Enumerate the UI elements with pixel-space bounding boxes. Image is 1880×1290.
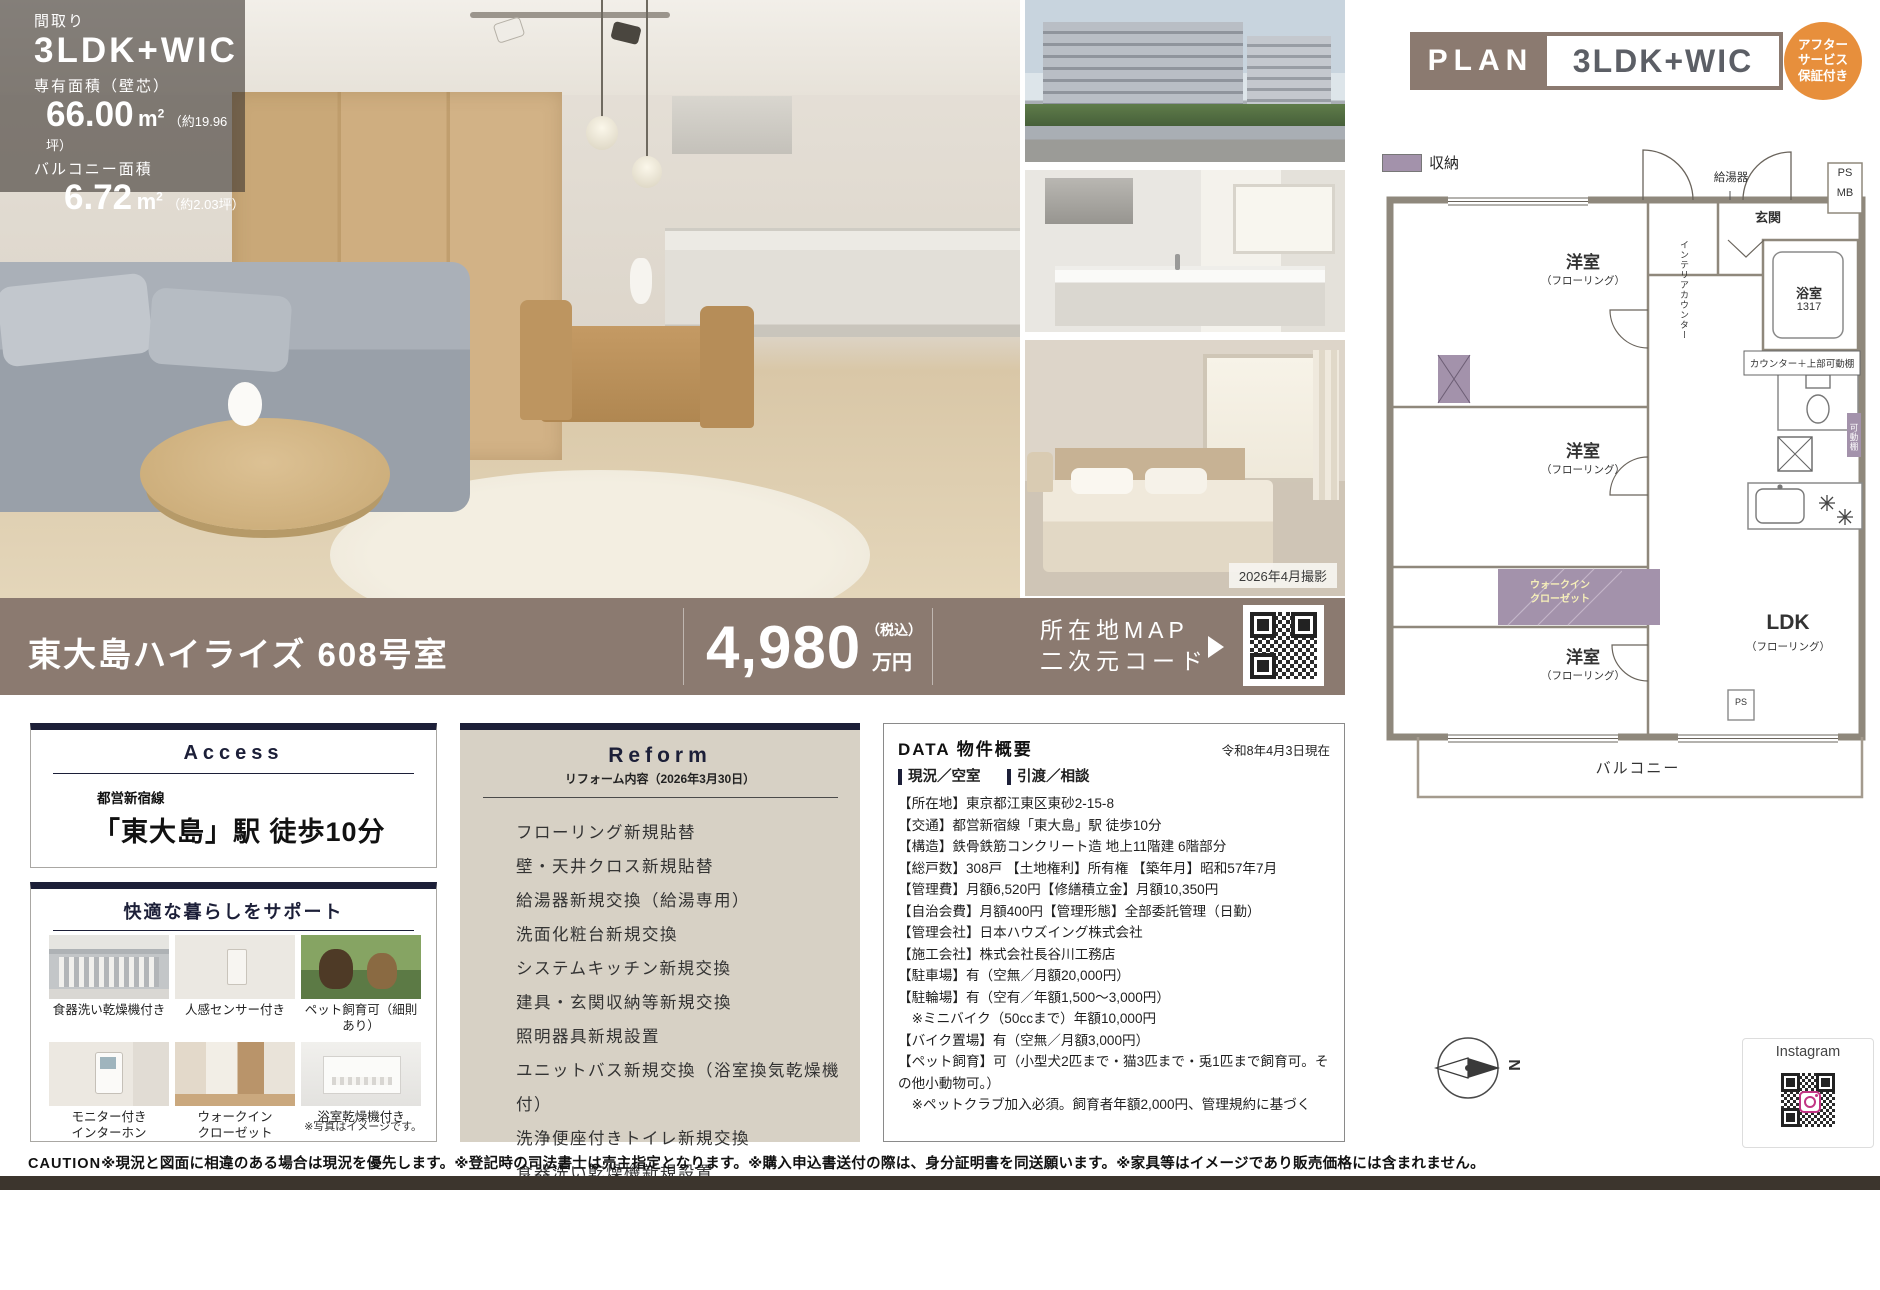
divider	[683, 608, 684, 685]
support-item: ウォークイン クローゼット	[175, 1042, 295, 1141]
floor-plan: 給湯器 玄関 PS MB 洋室 （フローリング） 浴室 1317 インテリアカウ…	[1378, 145, 1872, 825]
reform-item: 照明器具新規設置	[516, 1020, 860, 1054]
photo-kitchen	[1025, 170, 1345, 332]
badge-line: アフター	[1798, 38, 1848, 54]
label-interior-counter: インテリアカウンター	[1678, 227, 1691, 352]
kitchen-faucet	[1777, 484, 1782, 489]
label-genkan: 玄関	[1738, 207, 1798, 226]
data-box: DATA 物件概要 令和8年4月3日現在 現況／空室 引渡／相談 【所在地】東京…	[883, 723, 1345, 1142]
support-grid: 食器洗い乾燥機付き 人感センサー付き ペット飼育可（細則あり） モニター付き イ…	[49, 935, 421, 1142]
shooting-date-badge: 2026年4月撮影	[1229, 563, 1337, 588]
support-caption: モニター付き インターホン	[49, 1110, 169, 1141]
map-route	[962, 1262, 996, 1268]
curtain	[1313, 350, 1339, 500]
stove-burner	[1819, 495, 1835, 511]
pillow	[1071, 468, 1133, 494]
support-title: 快適な暮らしをサポート	[31, 898, 436, 924]
support-item: モニター付き インターホン	[49, 1042, 169, 1141]
data-row: 【交通】都営新宿線「東大島」駅 徒歩10分	[898, 815, 1330, 837]
dishes	[59, 957, 159, 987]
label-water-heater: 給湯器	[1696, 169, 1766, 185]
faucet	[1175, 254, 1180, 270]
map-qr-code	[1243, 605, 1324, 686]
thumb-motion-sensor	[175, 935, 295, 999]
after-service-badge: アフター サービス 保証付き	[1784, 22, 1862, 100]
kitchen-window	[1233, 184, 1335, 254]
property-name: 東大島ハイライズ 608号室	[28, 628, 449, 676]
price-unit: 万円	[872, 646, 922, 675]
balcony-label: バルコニー面積	[34, 158, 245, 179]
balcony-value: 6.72	[64, 178, 132, 217]
data-title: DATA 物件概要	[898, 735, 1033, 760]
coffee-table	[140, 418, 390, 530]
plan-header-label: PLAN	[1414, 36, 1547, 86]
data-status-row: 現況／空室 引渡／相談	[898, 765, 1330, 786]
compass-north-label: N	[1504, 1059, 1522, 1071]
area-unit: m2	[138, 106, 164, 131]
arrow-right-icon	[1208, 636, 1224, 658]
support-item: 人感センサー付き	[175, 935, 295, 1034]
instagram-block: Instagram	[1742, 1038, 1874, 1148]
data-row: 【所在地】東京都江東区東砂2-15-8	[898, 793, 1330, 815]
reform-list: フローリング新規貼替 壁・天井クロス新規貼替 給湯器新規交換（給湯専用） 洗面化…	[516, 816, 860, 1190]
pillow	[1145, 468, 1207, 494]
badge-line: サービス	[1798, 53, 1848, 69]
label-room1: 洋室	[1518, 248, 1648, 273]
caution-line: CAUTION※現況と図面に相違のある場合は現況を優先します。※登記時の司法書士…	[28, 1152, 1858, 1173]
label-room3-sub: （フローリング）	[1518, 668, 1648, 683]
dryer-vents	[332, 1077, 392, 1085]
label-bath: 浴室	[1773, 283, 1845, 302]
dining-chair	[700, 306, 754, 428]
data-status: 現況／空室	[898, 769, 981, 785]
support-caption: ペット飼育可（細則あり）	[301, 1003, 421, 1034]
label-room3: 洋室	[1518, 643, 1648, 668]
instagram-dot	[1815, 1094, 1818, 1097]
compass: N	[1425, 1022, 1529, 1114]
price-unit-block: （税込） 万円	[866, 620, 922, 675]
madori-value: 3LDK+WIC	[34, 31, 245, 71]
data-row: 【構造】鉄骨鉄筋コンクリート造 地上11階建 6階部分	[898, 836, 1330, 858]
label-ldk: LDK	[1728, 611, 1848, 635]
reform-underline	[483, 797, 838, 798]
reform-item: 洗面化粧台新規交換	[516, 918, 860, 952]
caution-label: CAUTION	[28, 1156, 101, 1172]
price-value: 4,980	[706, 618, 861, 678]
label-balcony: バルコニー	[1528, 757, 1748, 778]
label-wic: ウォークイン クローゼット	[1500, 579, 1620, 607]
access-box: Access 都営新宿線 「東大島」駅 徒歩10分	[30, 723, 437, 868]
badge-line: 保証付き	[1798, 69, 1848, 85]
vase-flowers	[630, 258, 652, 304]
support-caption: 食器洗い乾燥機付き	[49, 1003, 169, 1019]
balcony-note: （約2.03坪）	[167, 197, 244, 212]
area-value: 66.00	[46, 95, 134, 134]
caution-text: ※現況と図面に相違のある場合は現況を優先します。※登記時の司法書士は売主指定とな…	[101, 1156, 1485, 1172]
range-hood	[1045, 178, 1133, 224]
data-row: ※ミニバイク（50ccまで）年額10,000円	[898, 1008, 1330, 1030]
label-bath-size: 1317	[1773, 301, 1845, 313]
map-outline	[954, 1252, 1006, 1284]
data-row: 【管理費】月額6,520円【修繕積立金】月額10,350円	[898, 879, 1330, 901]
data-row: 【バイク置場】有（空無／月額3,000円）	[898, 1030, 1330, 1052]
dining-chair	[520, 300, 572, 420]
data-row: 【総戸数】308戸 【土地権利】所有権 【築年月】昭和57年7月	[898, 858, 1330, 880]
sofa-cushion	[0, 272, 154, 367]
map-icon: スマホで確認	[938, 1202, 1024, 1290]
label-ps: PS	[1830, 167, 1860, 179]
reform-item: 洗浄便座付きトイレ新規交換	[516, 1122, 860, 1156]
plan-header-type: 3LDK+WIC	[1547, 36, 1779, 86]
footer-bar	[0, 1176, 1880, 1190]
label-counter-shelf: カウンター＋上部可動棚	[1744, 356, 1860, 370]
reform-item: 建具・玄関収納等新規交換	[516, 986, 860, 1020]
instagram-icon	[1799, 1091, 1821, 1113]
label-ps2: PS	[1728, 697, 1754, 707]
data-row: 【施工会社】株式会社長谷川工務店	[898, 944, 1330, 966]
toilet	[1807, 395, 1829, 423]
support-caption: ウォークイン クローゼット	[175, 1110, 295, 1141]
area-label: 専有面積（壁芯）	[34, 75, 245, 96]
divider	[932, 608, 933, 685]
kitchen-island	[1055, 266, 1325, 326]
data-row: 【自治会費】月額400円【管理形態】全部委託管理（日勤）	[898, 901, 1330, 923]
reform-item: フローリング新規貼替	[516, 816, 860, 850]
access-line-name: 都営新宿線	[97, 787, 436, 807]
thumb-pets	[301, 935, 421, 999]
pendant-light-cord	[601, 0, 603, 118]
reform-item: 壁・天井クロス新規貼替	[516, 850, 860, 884]
entry-door-arc	[1643, 150, 1693, 200]
data-row: 【管理会社】日本ハウズイング株式会社	[898, 922, 1330, 944]
data-header: DATA 物件概要 令和8年4月3日現在	[898, 735, 1330, 760]
instagram-lens	[1804, 1096, 1816, 1108]
reform-box: Reform リフォーム内容（2026年3月30日） フローリング新規貼替 壁・…	[460, 723, 860, 1142]
instagram-qr-code	[1777, 1069, 1839, 1131]
pendant-light	[632, 156, 662, 188]
thumb-wic	[175, 1042, 295, 1106]
reform-item: システムキッチン新規交換	[516, 952, 860, 986]
access-station: 「東大島」駅 徒歩10分	[93, 810, 436, 849]
trees	[1025, 104, 1345, 126]
thumb-bath-dryer	[301, 1042, 421, 1106]
data-row: ※ペットクラブ加入必須。飼育者年額2,000円、管理規約に基づく	[898, 1094, 1330, 1116]
access-title: Access	[31, 742, 436, 765]
reform-title: Reform	[460, 744, 860, 768]
label-ldk-sub: （フローリング）	[1728, 639, 1848, 654]
photo-building-exterior	[1025, 0, 1345, 162]
building-block	[1247, 36, 1331, 108]
balcony-unit: m2	[137, 189, 163, 214]
toilet-tank	[1806, 375, 1830, 388]
thumb-intercom	[49, 1042, 169, 1106]
svg-text:スマホで確認: スマホで確認	[946, 1213, 1015, 1243]
spot-light-track	[470, 12, 670, 18]
photo-bedroom: 2026年4月撮影	[1025, 340, 1345, 596]
pendant-light	[586, 116, 618, 150]
closet-block	[1622, 569, 1660, 625]
label-room2-sub: （フローリング）	[1518, 462, 1648, 477]
label-mb: MB	[1830, 187, 1860, 199]
support-note: ※写真はイメージです。	[304, 1118, 422, 1134]
support-box: 快適な暮らしをサポート 食器洗い乾燥機付き 人感センサー付き ペット飼育可（細則…	[30, 882, 437, 1142]
wic-floor	[175, 1094, 295, 1106]
pendant-light-cord	[646, 0, 648, 158]
support-item: ペット飼育可（細則あり）	[301, 935, 421, 1034]
area-value-row: 66.00 m2 （約19.96坪）	[46, 96, 245, 155]
intercom-screen	[100, 1057, 116, 1069]
dog	[319, 949, 353, 989]
label-room2: 洋室	[1518, 437, 1648, 462]
title-bar: 東大島ハイライズ 608号室 4,980 （税込） 万円 スマホで確認 所在地M…	[0, 598, 1345, 695]
floor-plan-drawing	[1378, 145, 1872, 825]
support-item: 食器洗い乾燥機付き	[49, 935, 169, 1034]
data-row: 【ペット飼育】可（小型犬2匹まで・猫3匹まで・兎1匹まで飼育可。その他小動物可。…	[898, 1051, 1330, 1094]
label-room1-sub: （フローリング）	[1518, 273, 1648, 288]
map-label-line2: 二次元コード	[1040, 646, 1208, 677]
data-date: 令和8年4月3日現在	[1222, 740, 1330, 759]
stove-burner	[1837, 509, 1853, 525]
kitchen-hood	[672, 96, 792, 154]
map-label: 所在地MAP 二次元コード	[1040, 615, 1208, 677]
sensor-device	[227, 949, 247, 985]
data-rows: 【所在地】東京都江東区東砂2-15-8 【交通】都営新宿線「東大島」駅 徒歩10…	[898, 793, 1330, 1116]
kitchen-sink	[1756, 489, 1804, 523]
reform-item: ユニットバス新規交換（浴室換気乾燥機付）	[516, 1054, 860, 1122]
data-row: 【駐輪場】有（空有／年額1,500～3,000円）	[898, 987, 1330, 1009]
dryer-unit	[323, 1056, 401, 1094]
support-caption: 人感センサー付き	[175, 1003, 295, 1019]
data-handover: 引渡／相談	[1007, 769, 1090, 785]
sofa-cushion	[148, 287, 293, 373]
nightstand-lamp	[1027, 452, 1053, 492]
reform-subtitle: リフォーム内容（2026年3月30日）	[460, 770, 860, 787]
dog	[367, 953, 397, 989]
table-vase	[228, 382, 262, 426]
label-movable-shelf: 可動棚	[1848, 417, 1860, 457]
spec-overlay: 間取り 3LDK+WIC 専有面積（壁芯） 66.00 m2 （約19.96坪）…	[0, 0, 245, 192]
balcony-value-row: 6.72 m2 （約2.03坪）	[64, 179, 245, 218]
price-tax-note: （税込）	[866, 620, 922, 640]
map-label-line1: 所在地MAP	[1040, 615, 1208, 646]
reform-item: 給湯器新規交換（給湯専用）	[516, 884, 860, 918]
instagram-label: Instagram	[1743, 1044, 1873, 1060]
data-row: 【駐車場】有（空無／月額20,000円）	[898, 965, 1330, 987]
building-block	[1043, 22, 1243, 108]
map-note-text: スマホで確認	[946, 1213, 1015, 1243]
pin-dot	[974, 1242, 979, 1247]
support-underline	[53, 930, 414, 931]
plan-header: PLAN 3LDK+WIC	[1410, 32, 1783, 90]
thumb-dishwasher	[49, 935, 169, 999]
madori-label: 間取り	[34, 10, 245, 31]
access-underline	[53, 773, 414, 774]
